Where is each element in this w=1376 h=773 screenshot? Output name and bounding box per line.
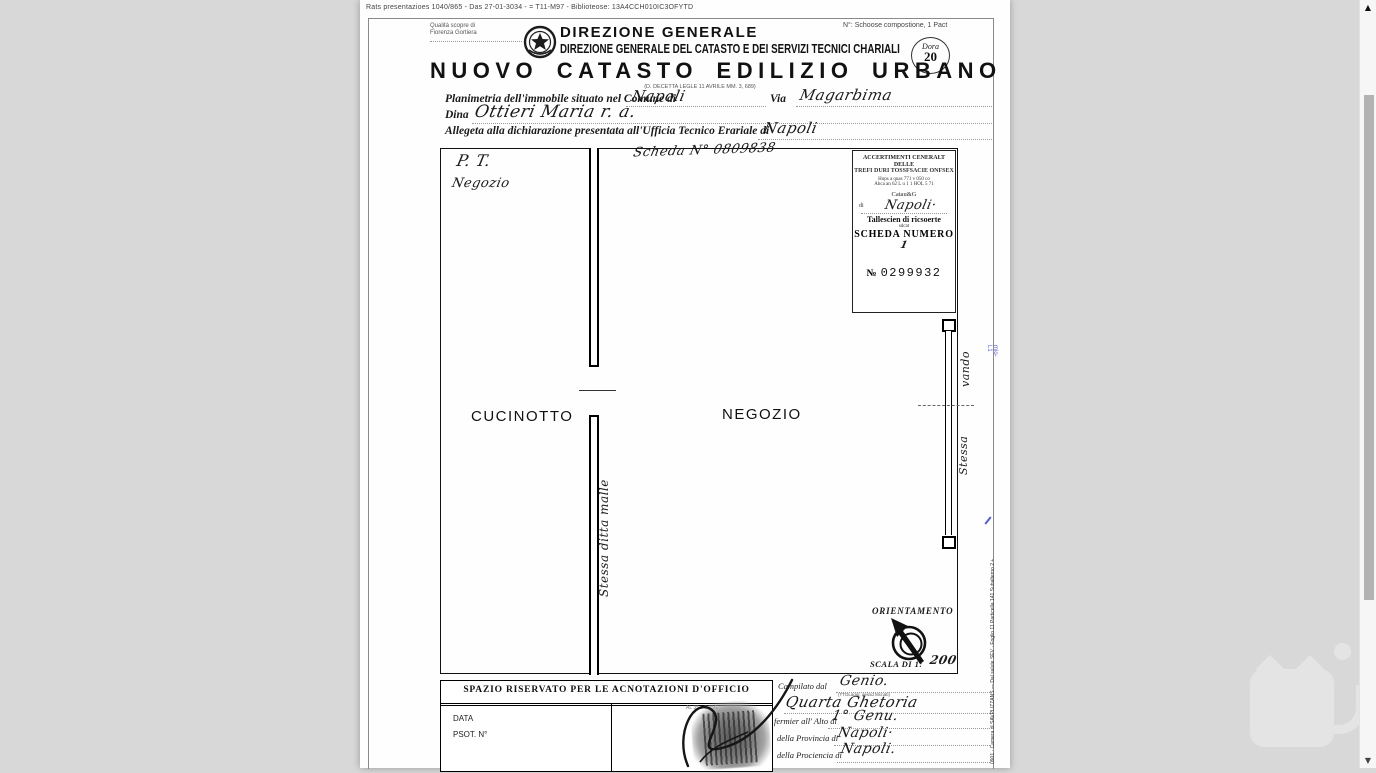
data-label: DATA xyxy=(453,714,473,723)
dotted-rule xyxy=(796,105,992,107)
margin-blue-note: mio-L1 xyxy=(986,345,998,357)
receipt-numero-symbol: № xyxy=(867,268,877,279)
compilato-label: Campilato dal xyxy=(778,681,827,691)
quality-note-line2: Fiorenza Gortiera xyxy=(430,30,522,37)
receipt-di-value: Napoli· xyxy=(883,198,937,213)
floor-plan: Scheda N° 0809838 P. T. Negozio CUCINOTT… xyxy=(440,148,958,674)
comune-value: Napoli xyxy=(630,87,687,105)
dotted-rule xyxy=(837,761,990,763)
window-lines xyxy=(945,331,952,535)
receipt-numero-value: 0299932 xyxy=(881,266,942,280)
receipt-line2: TREFI DURI TOSSFSACIE ONFSEX xyxy=(853,168,955,175)
axis-dashed-line xyxy=(918,405,974,406)
door-threshold xyxy=(579,390,616,391)
dotted-rule xyxy=(758,138,992,140)
via-label: Via xyxy=(770,93,786,105)
via-value: Magarbima xyxy=(798,86,894,104)
ufficio-value: Napoli xyxy=(762,119,819,137)
provincia-value: Napoli· xyxy=(836,725,894,741)
receipt-scheda-label: SCHEDA NUMERO xyxy=(853,229,955,240)
window-handnote-top: vando xyxy=(959,351,972,387)
wall-upper xyxy=(589,148,599,367)
document-page: Rats presentazioes 1040/865 - Das 27-01-… xyxy=(360,0,1010,768)
provincia2-label: della Prociencia di xyxy=(777,750,842,760)
watermark-logo xyxy=(1238,633,1363,753)
provincia2-value: Napoli. xyxy=(839,741,897,757)
albo-value: 1° Genu. xyxy=(830,708,900,724)
scroll-down-icon[interactable]: ▼ xyxy=(1360,756,1376,765)
quality-note-line1: Qualità scopre di xyxy=(430,23,522,30)
scala-value: 200 xyxy=(929,653,959,667)
scrollbar-thumb[interactable] xyxy=(1364,95,1374,600)
ufficio-label: Allegeta alla dichiarazione presentata a… xyxy=(445,125,769,137)
window-handnote-bottom: Stessa xyxy=(957,436,970,475)
agency-line2: DIREZIONE GENERALE DEL CATASTO E DEI SER… xyxy=(560,42,900,56)
receipt-line1: ACCERTIMENTI CENERALT DELLE xyxy=(853,155,955,168)
composition-note: N°: Schoose compostione, 1 Pact xyxy=(843,22,947,29)
albo-label: fermier all' Alto di xyxy=(774,716,837,726)
scan-metadata-line: Rats presentazioes 1040/865 - Das 27-01-… xyxy=(366,4,693,11)
dotted-rule xyxy=(472,122,992,124)
room-label-cucinotto: CUCINOTTO xyxy=(471,408,573,425)
compilato-value: Genio. xyxy=(838,673,890,689)
agency-line1: DIREZIONE GENERALE xyxy=(560,24,758,41)
orientamento-label: ORIENTAMENTO xyxy=(872,606,953,616)
ditta-value: Ottieri Maria r. a. xyxy=(473,102,638,122)
prot-label: PSOT. N° xyxy=(453,730,487,739)
receipt-talloncino: Tallescien di ricsoerte xyxy=(853,215,955,224)
document-title: NUOVO CATASTO EDILIZIO URBANO xyxy=(430,58,970,84)
receipt-di-label: di xyxy=(859,203,864,209)
dotted-rule xyxy=(861,212,947,214)
receipt-stamp-box: ACCERTIMENTI CENERALT DELLE TREFI DURI T… xyxy=(852,150,956,313)
margin-reference-note: 0901 · Camera di SAVPLIZZANS — Dal salut… xyxy=(990,559,996,764)
scroll-up-icon[interactable]: ▲ xyxy=(1360,3,1376,12)
window-jamb-bottom xyxy=(942,536,956,549)
scrollbar[interactable]: ▲ ▼ xyxy=(1359,0,1376,768)
floor-code: P. T. xyxy=(455,151,493,170)
scala-label: SCALA DI 1: xyxy=(870,659,923,669)
receipt-line4: Ahca an 62 L u 1 1 HOL 5 71 xyxy=(853,182,955,188)
box-divider xyxy=(611,703,612,771)
receipt-catasto: Catau&G xyxy=(853,191,955,198)
floor-use: Negozio xyxy=(450,176,511,191)
dotted-rule xyxy=(626,105,766,107)
room-label-negozio: NEGOZIO xyxy=(722,406,802,423)
wall-handnote: Stessa ditta malle xyxy=(597,479,611,597)
ditta-label: Dina xyxy=(445,109,469,121)
dotted-rule xyxy=(430,40,522,42)
receipt-scheda-value: 1 xyxy=(852,240,956,251)
provincia-label: della Provincia di xyxy=(777,733,838,743)
